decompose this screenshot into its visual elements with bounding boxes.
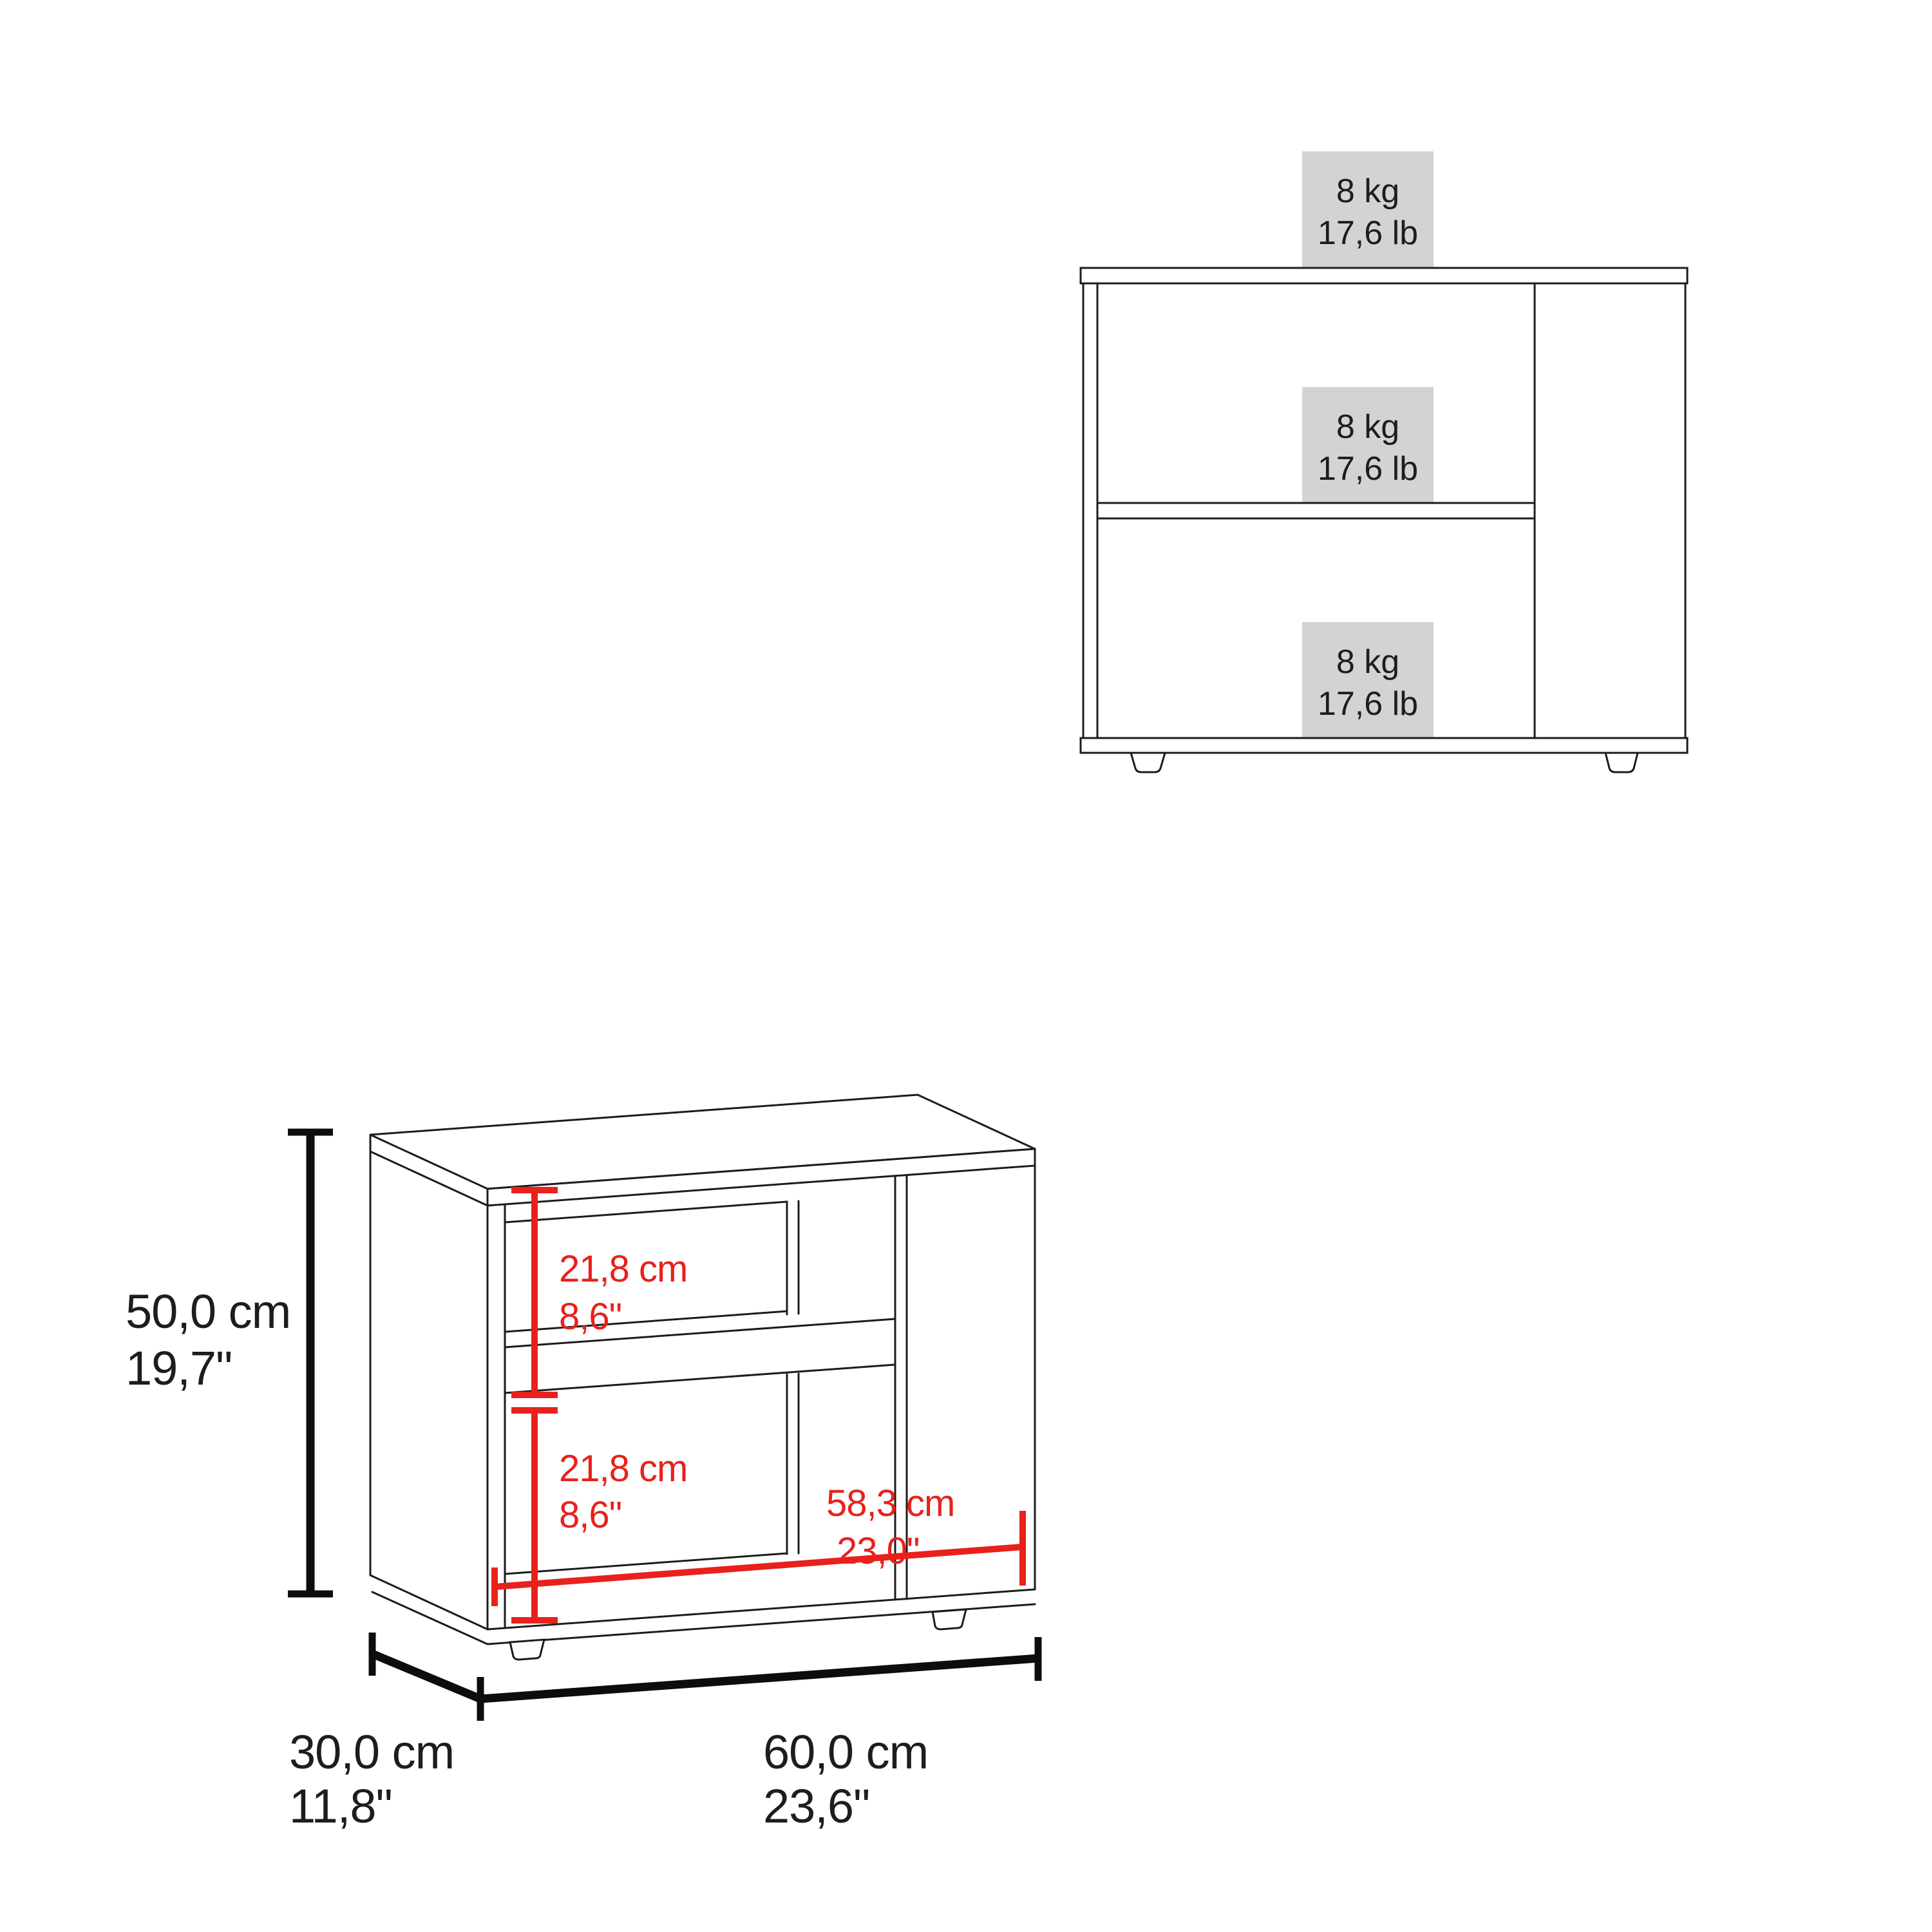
lower-compartment-label-cm: 21,8 cm: [559, 1448, 687, 1490]
lower-compartment-label-in: 8,6": [559, 1494, 621, 1536]
shelf-front-bottom-edge: [505, 1365, 895, 1393]
width-label-in: 23,6": [763, 1779, 869, 1833]
load-label-lb: 17,6 lb: [1318, 685, 1418, 723]
bottom-panel: [1081, 738, 1687, 753]
load-label-kg: 8 kg: [1336, 643, 1399, 681]
left-side-bottom-edge: [370, 1575, 488, 1629]
depth-dimension-line: [372, 1654, 480, 1699]
lower-compartment-dimension: 21,8 cm 8,6": [511, 1410, 687, 1620]
depth-label-cm: 30,0 cm: [289, 1725, 454, 1779]
upper-compartment-label-cm: 21,8 cm: [559, 1248, 687, 1290]
front-view: 8 kg 17,6 lb 8 kg 17,6 lb 8 kg 17,6 lb: [1081, 151, 1687, 772]
left-side-panel: [1083, 283, 1097, 738]
left-foot: [1131, 753, 1165, 772]
shelf-back-edge: [505, 1311, 787, 1332]
left-foot: [510, 1640, 544, 1660]
diagram-canvas: 8 kg 17,6 lb 8 kg 17,6 lb 8 kg 17,6 lb: [0, 0, 1932, 1932]
perspective-cabinet-structure: [370, 1095, 1035, 1660]
height-label-in: 19,7": [126, 1341, 232, 1395]
interior-width-label-in: 23,0": [837, 1530, 919, 1572]
depth-label-in: 11,8": [289, 1779, 392, 1833]
load-label-kg: 8 kg: [1336, 408, 1399, 446]
upper-compartment-dimension: 21,8 cm 8,6": [511, 1190, 687, 1395]
width-dimension-line: [480, 1658, 1038, 1699]
top-panel: [1081, 268, 1687, 283]
load-label-lb: 17,6 lb: [1318, 450, 1418, 488]
height-label-cm: 50,0 cm: [126, 1285, 290, 1338]
width-label-cm: 60,0 cm: [763, 1725, 928, 1779]
interior-width-label-cm: 58,3 cm: [826, 1482, 954, 1524]
right-foot: [1605, 753, 1638, 772]
left-base-bottom-edge: [372, 1592, 488, 1644]
perspective-view: 50,0 cm 19,7" 30,0 cm 11,8" 60,0 cm 23,6…: [126, 1095, 1038, 1833]
ceiling-back-edge: [505, 1202, 787, 1222]
dimension-diagram: 8 kg 17,6 lb 8 kg 17,6 lb 8 kg 17,6 lb: [0, 0, 1932, 1932]
upper-compartment-label-in: 8,6": [559, 1296, 621, 1338]
load-label-lb: 17,6 lb: [1318, 214, 1418, 252]
depth-dimension: 30,0 cm 11,8": [289, 1633, 480, 1833]
load-label-kg: 8 kg: [1336, 173, 1399, 210]
right-foot: [933, 1609, 966, 1629]
interior-width-line: [495, 1547, 1023, 1587]
width-dimension: 60,0 cm 23,6": [480, 1637, 1038, 1833]
height-dimension: 50,0 cm 19,7": [126, 1132, 333, 1594]
